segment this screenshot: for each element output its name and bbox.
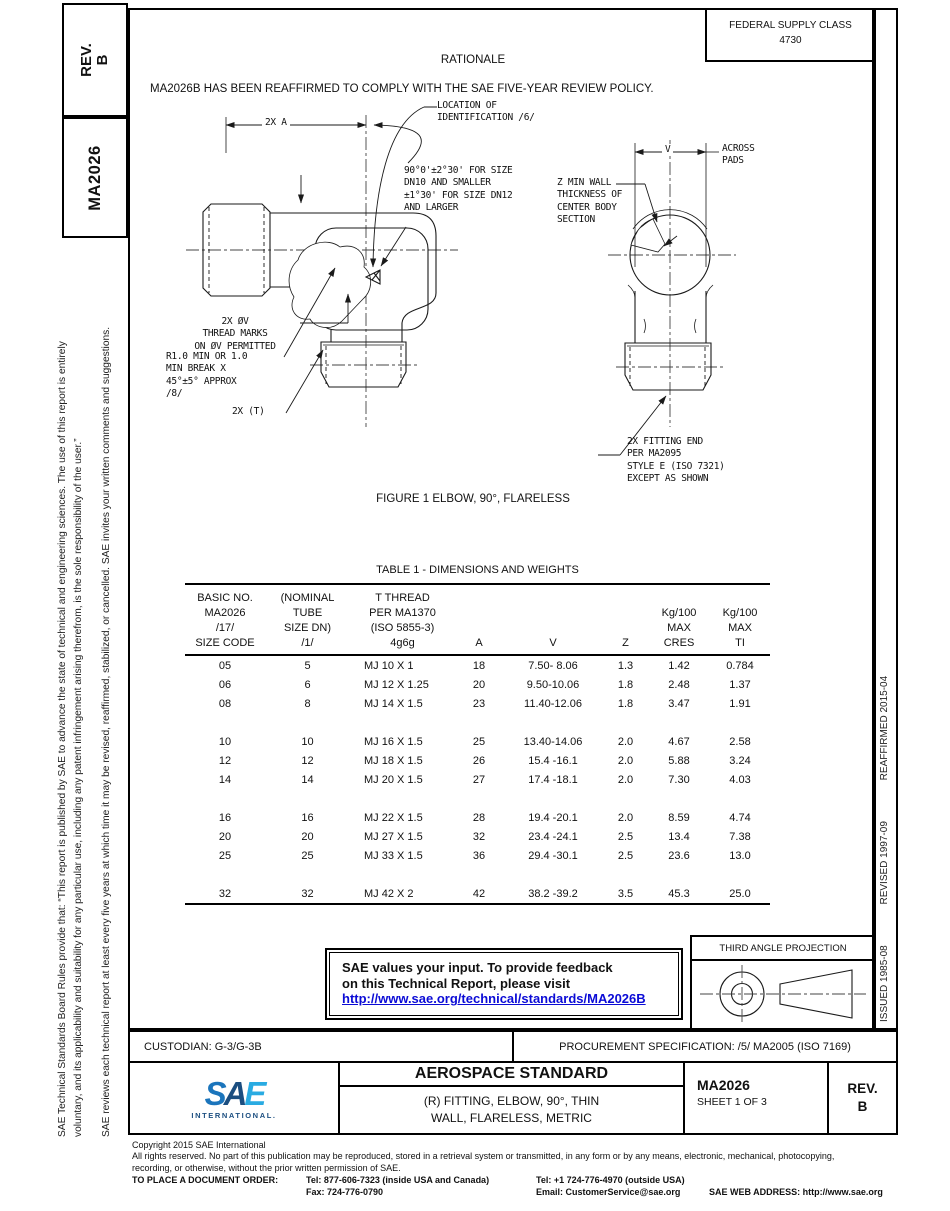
doc-title-line2: WALL, FLARELESS, METRIC xyxy=(340,1110,683,1127)
table-cell: 12 xyxy=(265,751,350,770)
doc-number-box: MA2026 xyxy=(62,117,128,238)
fsc-number: 4730 xyxy=(707,34,874,49)
table-header-cell: Z xyxy=(603,584,648,655)
table-cell: 17.4 -18.1 xyxy=(503,770,603,789)
dim-v-label: V xyxy=(662,144,673,156)
footer-order-label: TO PLACE A DOCUMENT ORDER: xyxy=(132,1175,278,1186)
table-cell: 0.784 xyxy=(710,655,770,675)
footer-copyright: Copyright 2015 SAE International xyxy=(132,1140,944,1151)
table-gap-row xyxy=(185,789,770,808)
table-cell: 16 xyxy=(265,808,350,827)
table-gap-row xyxy=(185,865,770,884)
table-cell: 1.8 xyxy=(603,675,648,694)
table-cell: 4.03 xyxy=(710,770,770,789)
table-cell: 25 xyxy=(185,846,265,865)
footer-email: Email: CustomerService@sae.org xyxy=(536,1187,680,1198)
table-cell: 19.4 -20.1 xyxy=(503,808,603,827)
thread-marks-note: 2X ØV THREAD MARKS ON ØV PERMITTED xyxy=(166,316,304,353)
table-cell: 10 xyxy=(265,732,350,751)
fsc-label: FEDERAL SUPPLY CLASS xyxy=(707,19,874,34)
footer-tel-inside: Tel: 877-606-7323 (inside USA and Canada… xyxy=(306,1175,489,1186)
table-cell: MJ 27 X 1.5 xyxy=(350,827,455,846)
table-cell: 06 xyxy=(185,675,265,694)
table-cell: MJ 10 X 1 xyxy=(350,655,455,675)
table-cell: MJ 42 X 2 xyxy=(350,884,455,904)
table-header-cell: (NOMINAL TUBE SIZE DN) /1/ xyxy=(265,584,350,655)
table-cell: 20 xyxy=(455,675,503,694)
feedback-link[interactable]: http://www.sae.org/technical/standards/M… xyxy=(342,991,646,1006)
revision-history-text: ISSUED 1985-08 REVISED 1997-09 REAFFIRME… xyxy=(879,676,890,1022)
table-cell: 8.59 xyxy=(648,808,710,827)
footer-rights-line2: recording, or otherwise, without the pri… xyxy=(132,1163,944,1174)
table-header-cell: Kg/100 MAX TI xyxy=(710,584,770,655)
projection-label: THIRD ANGLE PROJECTION xyxy=(692,937,874,961)
table-cell: 2.58 xyxy=(710,732,770,751)
rationale-heading: RATIONALE xyxy=(128,54,818,66)
table-row: 055MJ 10 X 1187.50- 8.061.31.420.784 xyxy=(185,655,770,675)
table-cell: 2.0 xyxy=(603,770,648,789)
dim-2xa-label: 2X A xyxy=(262,117,290,129)
table-cell: 23.4 -24.1 xyxy=(503,827,603,846)
table-cell: 5 xyxy=(265,655,350,675)
table-cell: 2.5 xyxy=(603,846,648,865)
third-angle-projection-symbol xyxy=(692,961,874,1027)
table-cell: 23.6 xyxy=(648,846,710,865)
table-header-row: BASIC NO. MA2026 /17/ SIZE CODE(NOMINAL … xyxy=(185,584,770,655)
break-edge-note: R1.0 MIN OR 1.0 MIN BREAK X 45°±5° APPRO… xyxy=(166,351,247,400)
rationale-text: MA2026B HAS BEEN REAFFIRMED TO COMPLY WI… xyxy=(150,83,654,95)
table-cell: 5.88 xyxy=(648,751,710,770)
table-cell: 10 xyxy=(185,732,265,751)
table-cell: 15.4 -16.1 xyxy=(503,751,603,770)
table-cell: 25 xyxy=(455,732,503,751)
table-cell: 11.40-12.06 xyxy=(503,694,603,713)
footer-rights-line1: All rights reserved. No part of this pub… xyxy=(132,1151,944,1162)
table-cell: 25.0 xyxy=(710,884,770,904)
custodian-cell: CUSTODIAN: G-3/G-3B xyxy=(128,1030,514,1063)
table-header-cell: Kg/100 MAX CRES xyxy=(648,584,710,655)
table-cell: 4.74 xyxy=(710,808,770,827)
table-cell: MJ 22 X 1.5 xyxy=(350,808,455,827)
figure-caption: FIGURE 1 ELBOW, 90°, FLARELESS xyxy=(128,493,818,505)
table-row: 3232MJ 42 X 24238.2 -39.23.545.325.0 xyxy=(185,884,770,904)
logo-letter-s: S xyxy=(205,1075,224,1112)
table-row: 1010MJ 16 X 1.52513.40-14.062.04.672.58 xyxy=(185,732,770,751)
feedback-line1: SAE values your input. To provide feedba… xyxy=(342,960,668,976)
table-cell: MJ 14 X 1.5 xyxy=(350,694,455,713)
table-gap-row xyxy=(185,713,770,732)
table-cell: MJ 33 X 1.5 xyxy=(350,846,455,865)
table-cell: 3.5 xyxy=(603,884,648,904)
table-cell: 7.50- 8.06 xyxy=(503,655,603,675)
table-cell: 20 xyxy=(185,827,265,846)
doc-type-heading: AEROSPACE STANDARD xyxy=(340,1063,683,1087)
table-cell: 2.0 xyxy=(603,808,648,827)
logo-subtitle: INTERNATIONAL. xyxy=(191,1111,276,1120)
table-cell: 6 xyxy=(265,675,350,694)
logo-letter-a: A xyxy=(224,1075,245,1112)
table-cell: 1.37 xyxy=(710,675,770,694)
table-cell: 2.0 xyxy=(603,732,648,751)
sidebar-legal-text: SAE Technical Standards Board Rules prov… xyxy=(55,237,87,1137)
table-cell: 32 xyxy=(185,884,265,904)
rev-box-value: B xyxy=(95,55,112,66)
footer-fax: Fax: 724-776-0790 xyxy=(306,1187,383,1198)
angle-tolerance-note: 90°0'±2°30' FOR SIZE DN10 AND SMALLER ±1… xyxy=(404,165,512,214)
table-title: TABLE 1 - DIMENSIONS AND WEIGHTS xyxy=(185,564,770,576)
table-cell: 18 xyxy=(455,655,503,675)
table-cell: 29.4 -30.1 xyxy=(503,846,603,865)
rev-box-label: REV. xyxy=(79,43,96,77)
document-sheet: SAE Technical Standards Board Rules prov… xyxy=(0,0,950,1211)
table-cell: MJ 20 X 1.5 xyxy=(350,770,455,789)
table-cell: 45.3 xyxy=(648,884,710,904)
table-row: 1616MJ 22 X 1.52819.4 -20.12.08.594.74 xyxy=(185,808,770,827)
issued-date: ISSUED 1985-08 xyxy=(879,945,890,1022)
rev-value: B xyxy=(858,1098,868,1116)
table-cell: 3.24 xyxy=(710,751,770,770)
table-cell: 28 xyxy=(455,808,503,827)
table-cell: 1.3 xyxy=(603,655,648,675)
table-cell: 38.2 -39.2 xyxy=(503,884,603,904)
table-cell: 14 xyxy=(185,770,265,789)
footer: Copyright 2015 SAE International All rig… xyxy=(132,1140,944,1206)
table-row: 066MJ 12 X 1.25209.50-10.061.82.481.37 xyxy=(185,675,770,694)
table-cell: 16 xyxy=(185,808,265,827)
table-cell: 13.40-14.06 xyxy=(503,732,603,751)
table-cell: 7.30 xyxy=(648,770,710,789)
table-cell: 32 xyxy=(455,827,503,846)
title-block: SAE INTERNATIONAL. AEROSPACE STANDARD (R… xyxy=(128,1061,898,1135)
table-cell: 2.0 xyxy=(603,751,648,770)
procurement-text: PROCUREMENT SPECIFICATION: /5/ MA2005 (I… xyxy=(559,1041,851,1053)
table-cell: 13.0 xyxy=(710,846,770,865)
reaffirmed-date: REAFFIRMED 2015-04 xyxy=(879,676,890,780)
table-cell: 12 xyxy=(185,751,265,770)
fitting-end-note: 2X FITTING END PER MA2095 STYLE E (ISO 7… xyxy=(627,436,725,485)
table-cell: 23 xyxy=(455,694,503,713)
procurement-cell: PROCUREMENT SPECIFICATION: /5/ MA2005 (I… xyxy=(512,1030,898,1063)
table-cell: 4.67 xyxy=(648,732,710,751)
feedback-box: SAE values your input. To provide feedba… xyxy=(325,948,683,1020)
table-header-cell: A xyxy=(455,584,503,655)
doc-title-line1: (R) FITTING, ELBOW, 90°, THIN xyxy=(340,1093,683,1110)
table-cell: 14 xyxy=(265,770,350,789)
table-row: 2020MJ 27 X 1.53223.4 -24.12.513.47.38 xyxy=(185,827,770,846)
table-cell: 20 xyxy=(265,827,350,846)
table-cell: 08 xyxy=(185,694,265,713)
table-header-cell: BASIC NO. MA2026 /17/ SIZE CODE xyxy=(185,584,265,655)
table-cell: MJ 16 X 1.5 xyxy=(350,732,455,751)
table-cell: 05 xyxy=(185,655,265,675)
across-pads-note: ACROSS PADS xyxy=(722,143,755,168)
table-row: 2525MJ 33 X 1.53629.4 -30.12.523.613.0 xyxy=(185,846,770,865)
table-cell: 36 xyxy=(455,846,503,865)
footer-web: SAE WEB ADDRESS: http://www.sae.org xyxy=(709,1187,883,1198)
table-cell: 13.4 xyxy=(648,827,710,846)
table-cell: 7.38 xyxy=(710,827,770,846)
custodian-text: CUSTODIAN: G-3/G-3B xyxy=(144,1041,262,1053)
revised-date: REVISED 1997-09 xyxy=(879,821,890,904)
table-cell: 25 xyxy=(265,846,350,865)
table-row: 088MJ 14 X 1.52311.40-12.061.83.471.91 xyxy=(185,694,770,713)
elbow-drawing xyxy=(128,95,874,515)
table-header-cell: T THREAD PER MA1370 (ISO 5855-3) 4g6g xyxy=(350,584,455,655)
sidebar-review-text: SAE reviews each technical report at lea… xyxy=(99,237,115,1137)
footer-tel-outside: Tel: +1 724-776-4970 (outside USA) xyxy=(536,1175,685,1186)
table-cell: 2.5 xyxy=(603,827,648,846)
doc-number-label: MA2026 xyxy=(86,145,104,210)
table-cell: MJ 18 X 1.5 xyxy=(350,751,455,770)
table-header-cell: V xyxy=(503,584,603,655)
table-row: 1212MJ 18 X 1.52615.4 -16.12.05.883.24 xyxy=(185,751,770,770)
location-id-note: LOCATION OF IDENTIFICATION /6/ xyxy=(437,100,535,125)
table-cell: 32 xyxy=(265,884,350,904)
table-cell: 42 xyxy=(455,884,503,904)
table-cell: 1.91 xyxy=(710,694,770,713)
sheet-number: SHEET 1 OF 3 xyxy=(697,1096,827,1108)
table-cell: 8 xyxy=(265,694,350,713)
logo-letter-e: E xyxy=(244,1075,263,1112)
rev-label: REV. xyxy=(847,1080,877,1098)
table-cell: 9.50-10.06 xyxy=(503,675,603,694)
table-cell: 27 xyxy=(455,770,503,789)
rev-box: REV. B xyxy=(62,3,128,117)
z-wall-note: Z MIN WALL THICKNESS OF CENTER BODY SECT… xyxy=(557,177,622,226)
doc-number-value: MA2026 xyxy=(697,1077,827,1093)
dimensions-table: BASIC NO. MA2026 /17/ SIZE CODE(NOMINAL … xyxy=(185,583,770,905)
table-cell: 1.42 xyxy=(648,655,710,675)
t-dim-note: 2X (T) xyxy=(232,406,265,418)
table-cell: MJ 12 X 1.25 xyxy=(350,675,455,694)
feedback-line2: on this Technical Report, please visit xyxy=(342,976,668,992)
table-cell: 2.48 xyxy=(648,675,710,694)
table-cell: 1.8 xyxy=(603,694,648,713)
table-cell: 26 xyxy=(455,751,503,770)
projection-box: THIRD ANGLE PROJECTION xyxy=(690,935,876,1030)
table-row: 1414MJ 20 X 1.52717.4 -18.12.07.304.03 xyxy=(185,770,770,789)
table-cell: 3.47 xyxy=(648,694,710,713)
sae-logo: SAE INTERNATIONAL. xyxy=(130,1063,338,1133)
